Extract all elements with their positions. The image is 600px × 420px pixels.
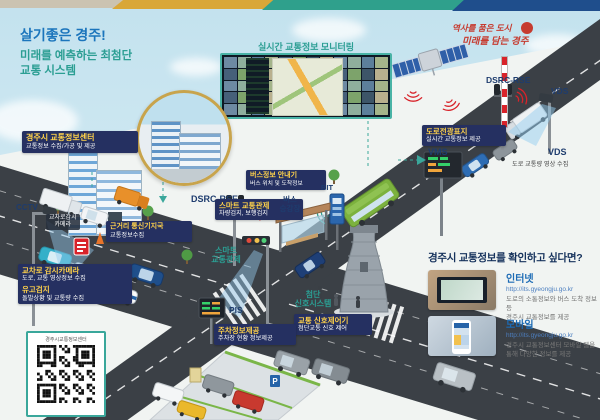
monitor-cell: [224, 81, 237, 92]
tree: [182, 250, 193, 265]
svg-text:P: P: [272, 377, 278, 386]
vds-top-label: VDS: [551, 86, 568, 96]
vehicle-silver-van: [431, 362, 476, 395]
monitor-cell: [348, 81, 361, 92]
bit-label: BIT: [321, 183, 333, 192]
monitor-cell: [224, 57, 237, 68]
base-station-box: 근거리 통신기지국 교통정보수집: [106, 221, 192, 242]
pedestrian: [356, 296, 360, 308]
qr-card-label: 경주시교통정보센터: [28, 336, 104, 343]
photo-building-block: [151, 121, 181, 173]
qr-code: [37, 345, 95, 403]
bus-info-box: 버스정보 안내기 버스 위치 및 도착정보: [246, 170, 326, 190]
monitor-cell: [362, 57, 375, 68]
vehicle-gray-van: [310, 358, 350, 387]
parking-info-box: 주차정보제공 주차장 현황 정보제공: [214, 324, 296, 345]
city-slogan-line2: 미래를 담는 경주: [462, 33, 528, 47]
internet-photo: [428, 270, 496, 310]
cctv-label: CCTV: [16, 203, 38, 212]
signal-waves-icon: [443, 98, 459, 114]
monitor-cell: [348, 69, 361, 80]
mobile-photo: [428, 316, 496, 356]
parked-van: [201, 374, 235, 399]
striped-antenna-mast: [501, 56, 508, 128]
monitor-cell: [362, 81, 375, 92]
traffic-cone: [96, 232, 104, 244]
monitor-map-screen: [272, 58, 343, 116]
traffic-center-box: 경주시 교통정보센터 교통정보 수집/가공 및 제공: [22, 131, 138, 153]
page-subtitle-line1: 미래를 예측하는 최첨단: [20, 47, 132, 63]
signal-waves-icon: [515, 88, 530, 103]
traffic-center-photo: [136, 90, 232, 186]
vms-label: VMS: [428, 147, 448, 157]
internet-url-link[interactable]: http://its.gyeongju.go.kr: [506, 286, 598, 293]
signal-controller-box: 교통 신호제어기 첨단교통 신호 제어: [294, 314, 372, 335]
tablet-screen: [441, 280, 483, 300]
monitor-cell: [375, 57, 388, 68]
photo-building-block: [179, 133, 221, 173]
vds-right-label: VDS: [548, 147, 567, 157]
monitoring-video-wall: [220, 53, 392, 119]
dsrc-top-label: DSRC-RSE: [486, 75, 530, 85]
monitor-cell: [362, 104, 375, 115]
internet-label: 인터넷: [506, 270, 598, 285]
mobile-label: 모바일: [506, 316, 595, 331]
arrow-down-icon: [159, 196, 167, 203]
intersection-camera-tag: 교차로감시 카메라: [46, 214, 80, 230]
monitor-cell: [375, 92, 388, 103]
monitor-cell: [362, 92, 375, 103]
monitoring-label: 실시간 교통정보 모니터링: [220, 40, 392, 53]
info-item-mobile: 모바일 http://its.gyeongju.go.kr 경주시 교통정보센터…: [428, 316, 598, 360]
mobile-url-link[interactable]: http://its.gyeongju.go.kr: [506, 332, 595, 339]
page-title: 살기좋은 경주!: [20, 25, 106, 45]
vms-sign: [424, 152, 462, 236]
monitor-cell: [224, 69, 237, 80]
slogan-stamp-icon: [521, 22, 533, 34]
smart-control-label: 스마트 교통관제: [204, 246, 248, 264]
infographic-poster: P: [0, 0, 600, 420]
vehicle-orange-truck: [113, 186, 151, 213]
accident-sign: [74, 238, 89, 255]
vehicle-blue-car: [460, 152, 492, 180]
tree: [329, 170, 340, 185]
monitor-cell: [362, 69, 375, 80]
vehicle-gray-van: [272, 350, 310, 379]
monitor-cell: [348, 92, 361, 103]
info-panel-title: 경주시 교통정보를 확인하고 싶다면?: [428, 250, 582, 265]
intersection-camera-box: 교차로 감시카메라 도로, 교통 영상정보 수집 유고검지 돌발상황 및 교통량…: [18, 264, 132, 304]
vds-right-desc: 도로 교통량 영상 수집: [512, 159, 568, 168]
vehicle-navy-pickup: [294, 251, 328, 281]
mobile-desc: 경주시 교통정보센터 모바일 웹을 통해 다양한 정보를 제공: [506, 342, 595, 360]
vms-box: 도로전광표지 실시간 교통정보 제공: [422, 125, 506, 146]
monitor-cell: [348, 57, 361, 68]
vehicle-white-van: [79, 206, 109, 229]
parking-sign: P: [270, 375, 280, 387]
monitor-cell: [375, 104, 388, 115]
city-bus: [340, 178, 403, 232]
signal-waves-icon: [405, 89, 422, 106]
monitor-cell: [375, 69, 388, 80]
page-subtitle-line2: 교통 시스템: [20, 62, 76, 78]
info-item-internet: 인터넷 http://its.gyeongju.go.kr 도로의 소통정보와 …: [428, 270, 598, 322]
parking-booth: [190, 368, 201, 382]
signal-system-label: 첨단 신호시스템: [288, 290, 338, 308]
bit-sign: [330, 194, 344, 250]
monitor-cell: [224, 92, 237, 103]
monitor-cell: [224, 104, 237, 115]
photo-pavement: [139, 169, 229, 183]
monitor-cell: [375, 81, 388, 92]
phone-screen: [454, 323, 469, 349]
qr-card: 경주시교통정보센터: [26, 331, 106, 417]
parked-red-van: [231, 390, 265, 415]
vehicle-blue-sedan: [127, 263, 165, 290]
monitor-console-screen: [246, 58, 270, 114]
cheomseongdae-tower: [334, 225, 394, 318]
pis-label: PIS: [229, 305, 243, 315]
satellite-icon: [391, 41, 471, 86]
parked-taxi: [175, 400, 206, 420]
bus-stop-label: 버스 승강장: [272, 196, 308, 213]
monitor-cell: [348, 104, 361, 115]
